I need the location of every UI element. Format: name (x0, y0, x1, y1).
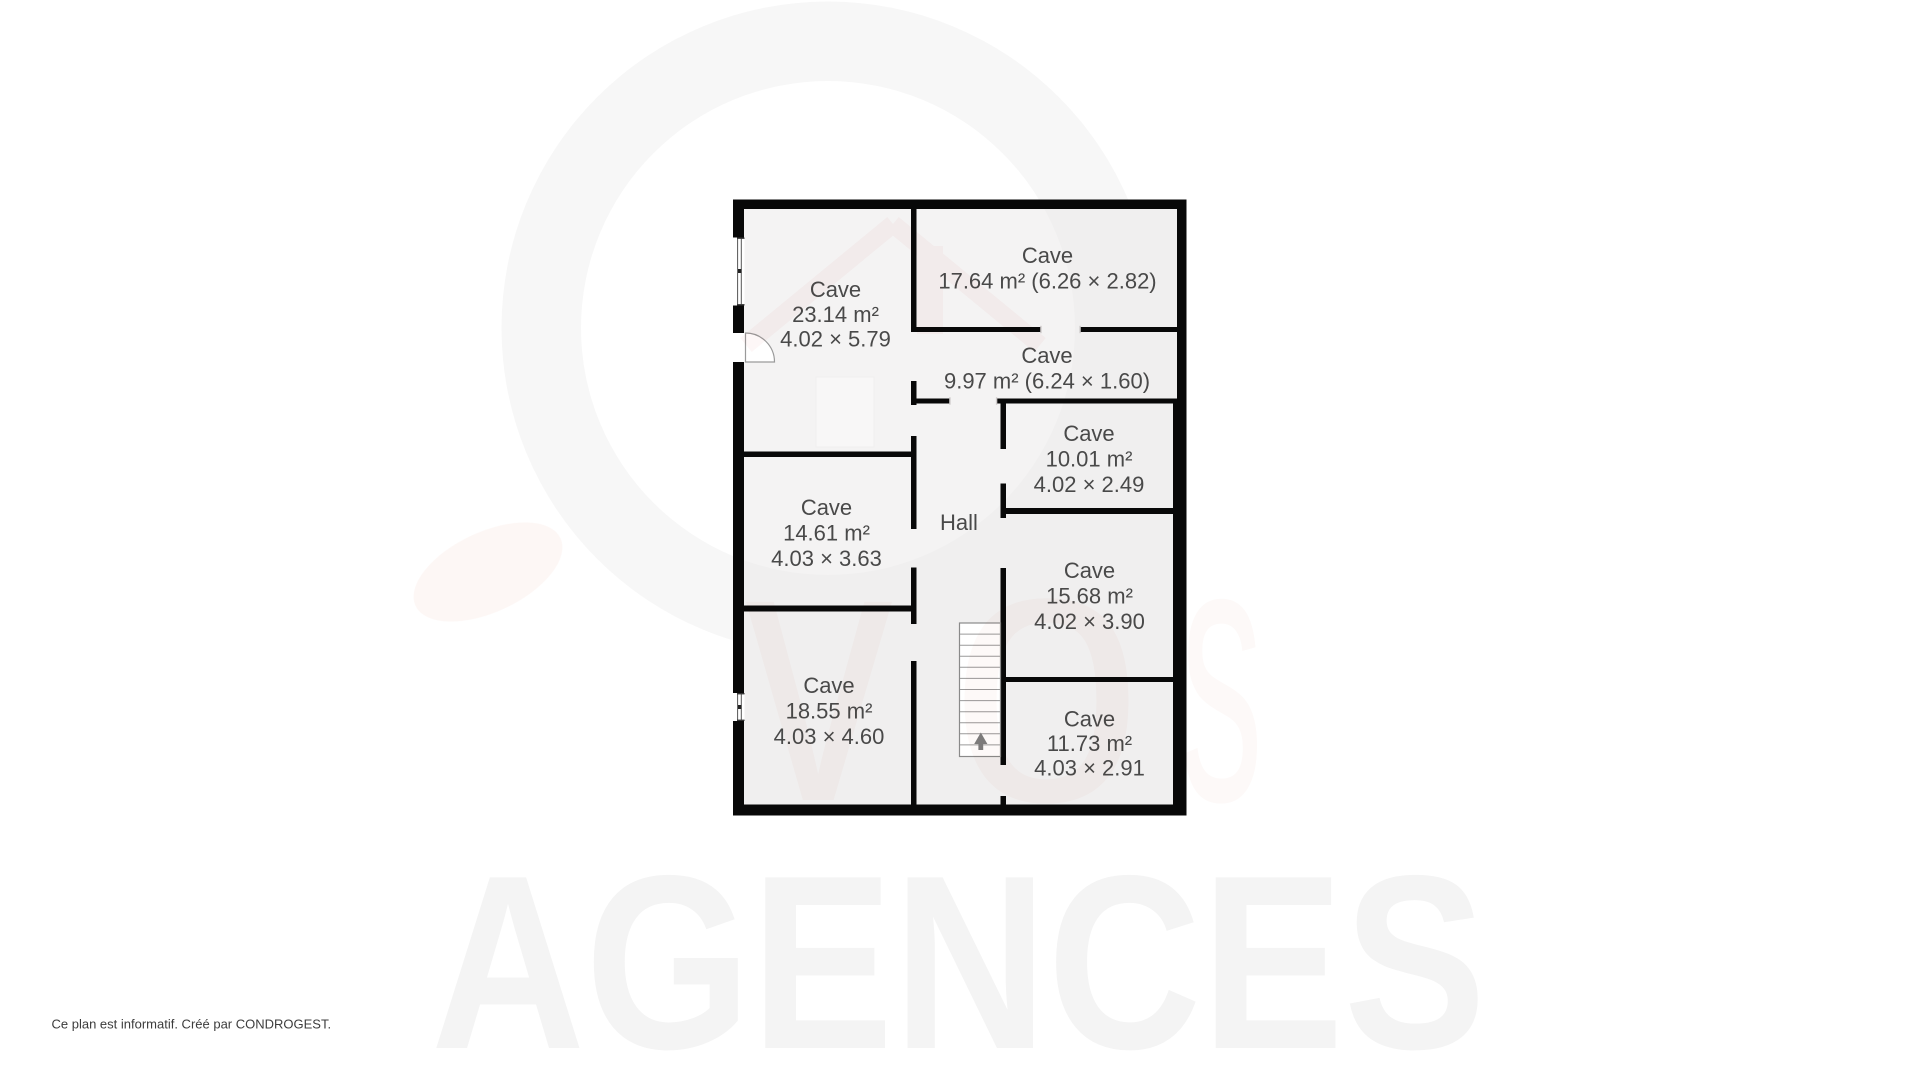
svg-text:v: v (745, 462, 893, 880)
svg-text:4.02 × 5.79: 4.02 × 5.79 (780, 327, 891, 352)
svg-text:9.97 m² (6.24 × 1.60): 9.97 m² (6.24 × 1.60) (944, 369, 1150, 394)
svg-text:Cave: Cave (1063, 421, 1114, 446)
svg-text:Ce plan est informatif. Créé p: Ce plan est informatif. Créé par CONDROG… (52, 1017, 332, 1032)
svg-text:s: s (1180, 462, 1263, 880)
svg-text:Cave: Cave (1022, 243, 1073, 268)
svg-text:o: o (950, 462, 1143, 880)
